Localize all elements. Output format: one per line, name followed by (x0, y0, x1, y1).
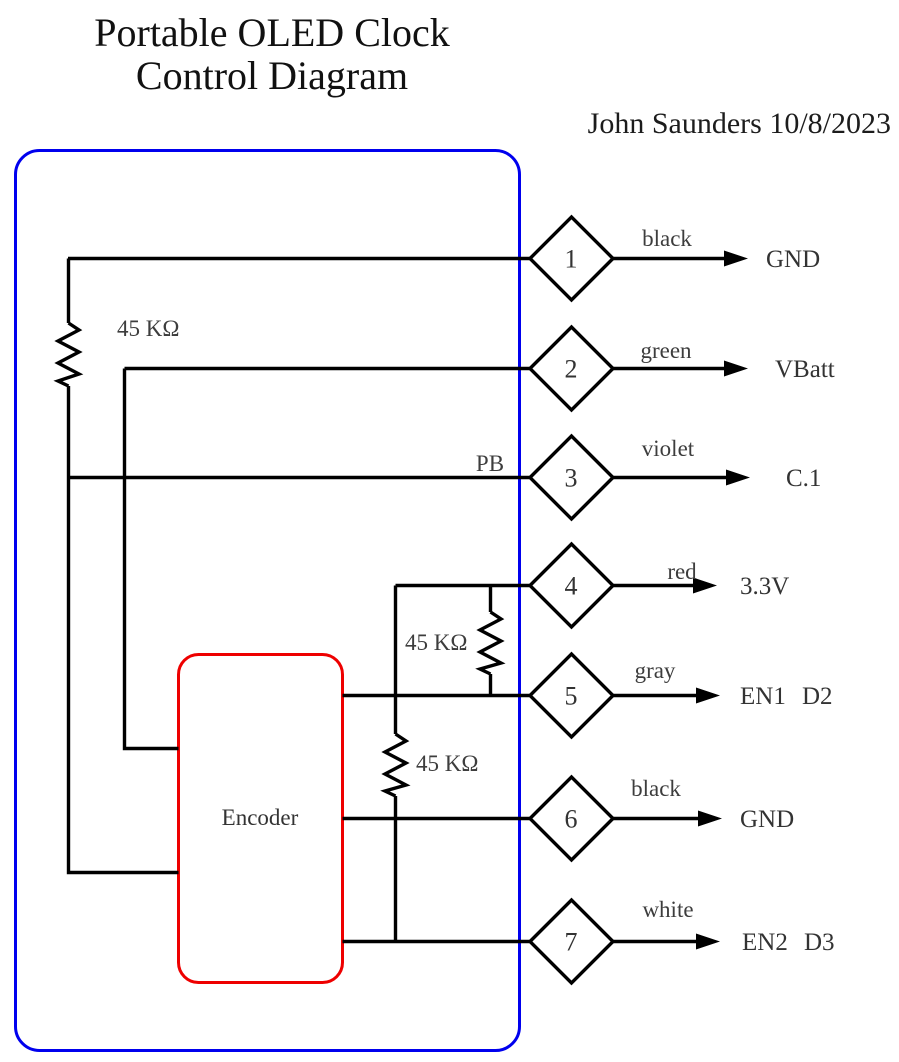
pin-number-4: 4 (565, 572, 578, 601)
pin-row-7: 7 white EN2 D3 (530, 897, 835, 983)
diagram-title-line2: Control Diagram (136, 53, 408, 98)
pin-row-2: 2 green VBatt (530, 327, 835, 410)
signal-label-5: EN1 (740, 683, 786, 710)
signal-label-7: EN2 (742, 929, 788, 956)
resistor-3-symbol (385, 734, 406, 796)
signal-label-5b: D2 (802, 683, 833, 710)
pin-row-1: 1 black GND (530, 217, 820, 300)
wire-color-label-1: black (642, 226, 692, 251)
pin-row-4: 4 red 3.3V (530, 544, 789, 627)
resistor-3-label: 45 KΩ (416, 751, 478, 776)
author-date: John Saunders 10/8/2023 (588, 107, 891, 140)
signal-label-2: VBatt (775, 356, 835, 383)
signal-label-6: GND (740, 806, 794, 833)
arrowhead-icon (698, 811, 722, 827)
pb-label: PB (476, 451, 504, 476)
wire-color-label-7: white (642, 897, 693, 922)
pin-number-1: 1 (565, 245, 578, 274)
pin-number-5: 5 (565, 682, 578, 711)
resistor-1-label: 45 KΩ (117, 316, 179, 341)
pin-row-6: 6 black GND (530, 776, 794, 860)
resistor-1-symbol (58, 323, 79, 386)
diagram-title-line1: Portable OLED Clock (94, 10, 450, 55)
signal-label-4: 3.3V (740, 573, 789, 600)
encoder-label: Encoder (222, 805, 299, 830)
enclosure-box (16, 151, 520, 1051)
signal-label-1: GND (766, 246, 820, 273)
pin-row-5: 5 gray EN1 D2 (530, 654, 833, 737)
arrowhead-icon (726, 470, 750, 486)
wire-bus-b (125, 369, 179, 749)
arrowhead-icon (724, 361, 748, 377)
signal-label-3: C.1 (786, 465, 821, 492)
pin-number-3: 3 (565, 464, 578, 493)
wire-color-label-6: black (631, 776, 681, 801)
arrowhead-icon (724, 251, 748, 267)
wire-color-label-4: red (667, 559, 697, 584)
arrowhead-icon (696, 934, 720, 950)
wires (58, 259, 532, 942)
resistor-2-label: 45 KΩ (405, 630, 467, 655)
arrowhead-icon (696, 688, 720, 704)
wire-color-label-5: gray (635, 658, 676, 683)
pin-row-3: 3 violet C.1 (530, 436, 821, 519)
pin-number-6: 6 (565, 805, 578, 834)
resistor-2-symbol (480, 612, 501, 674)
wire-color-label-2: green (640, 338, 692, 363)
diagram-canvas: Portable OLED Clock Control Diagram John… (0, 0, 899, 1062)
wire-color-label-3: violet (642, 436, 695, 461)
signal-label-7b: D3 (804, 929, 835, 956)
pin-number-7: 7 (565, 928, 578, 957)
pin-number-2: 2 (565, 355, 578, 384)
